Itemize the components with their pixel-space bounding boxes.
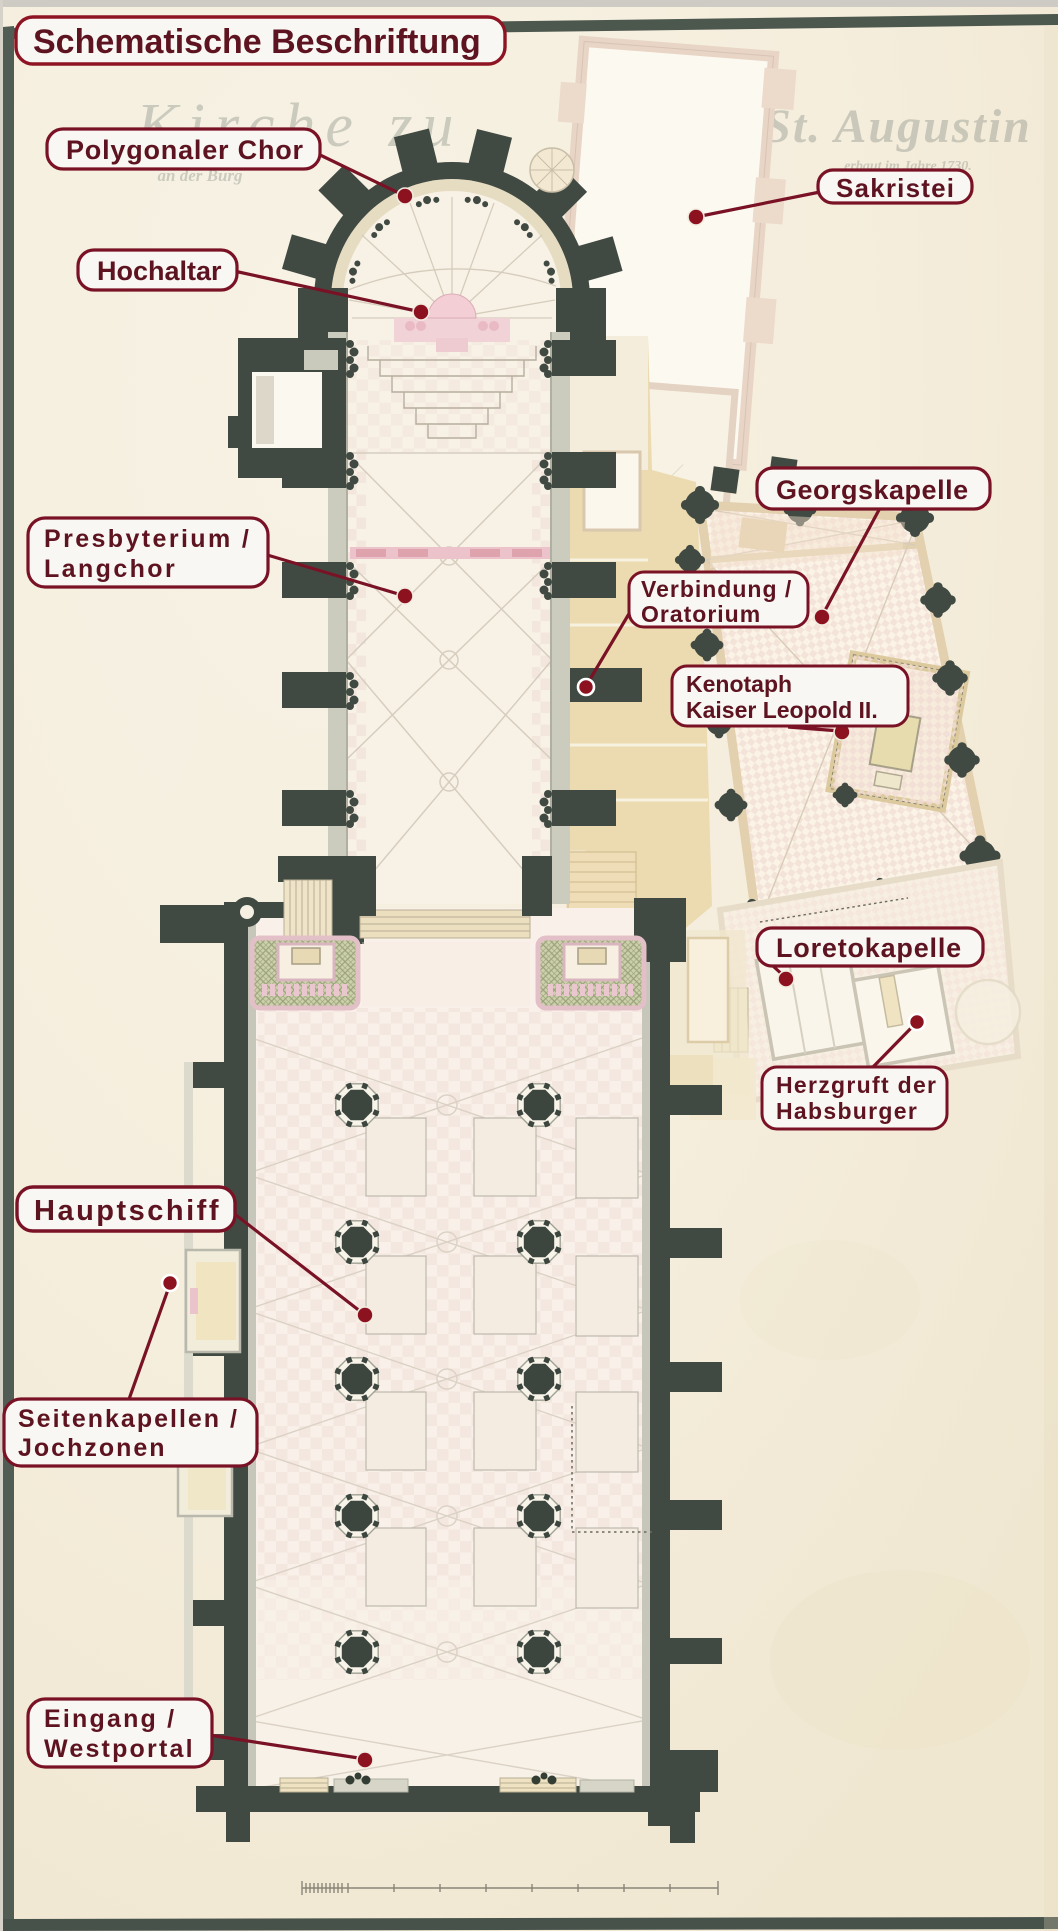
svg-text:Polygonaler Chor: Polygonaler Chor: [66, 135, 304, 165]
svg-text:Loretokapelle: Loretokapelle: [776, 933, 962, 963]
svg-text:Georgskapelle: Georgskapelle: [776, 475, 969, 505]
svg-text:Westportal: Westportal: [44, 1735, 195, 1763]
svg-text:Herzgruft der: Herzgruft der: [776, 1072, 937, 1098]
svg-text:Habsburger: Habsburger: [776, 1098, 918, 1124]
svg-text:Kenotaph: Kenotaph: [686, 671, 792, 697]
svg-text:Hochaltar: Hochaltar: [97, 256, 222, 286]
svg-text:Verbindung /: Verbindung /: [641, 576, 792, 602]
svg-text:Jochzonen: Jochzonen: [18, 1434, 167, 1462]
svg-text:Sakristei: Sakristei: [836, 173, 955, 203]
svg-text:Langchor: Langchor: [44, 555, 177, 583]
svg-text:Kaiser Leopold II.: Kaiser Leopold II.: [686, 697, 878, 723]
svg-text:Seitenkapellen /: Seitenkapellen /: [18, 1405, 239, 1433]
svg-text:Presbyterium /: Presbyterium /: [44, 525, 251, 553]
svg-text:Oratorium: Oratorium: [641, 601, 761, 627]
svg-text:St. Augustin: St. Augustin: [764, 100, 1032, 153]
svg-text:Hauptschiff: Hauptschiff: [34, 1195, 221, 1227]
svg-text:Eingang /: Eingang /: [44, 1705, 176, 1733]
svg-text:Schematische Beschriftung: Schematische Beschriftung: [33, 23, 481, 61]
